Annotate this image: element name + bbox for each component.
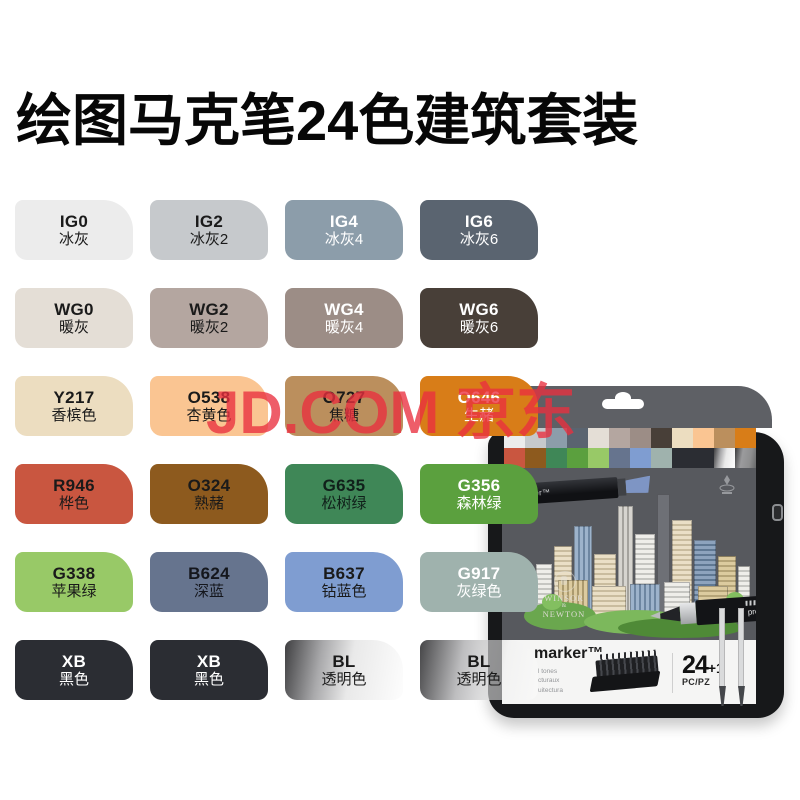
marker-ferrule — [617, 478, 626, 496]
color-chip — [609, 428, 630, 448]
color-chip — [651, 448, 672, 468]
color-swatch-wg6: WG6 暖灰6 — [420, 288, 538, 348]
color-swatch-ig4: IG4 冰灰4 — [285, 200, 403, 260]
swatch-code: G917 — [458, 564, 501, 583]
color-swatch-ig2: IG2 冰灰2 — [150, 200, 268, 260]
color-swatch-g356: G356 森林绿 — [420, 464, 538, 524]
winsor-emblem-icon — [554, 571, 576, 592]
color-swatch-o324: O324 熟赭 — [150, 464, 268, 524]
swatch-code: G338 — [53, 564, 96, 583]
multilanguage-description: l tones cturaux uitectura — [538, 667, 563, 695]
marker-ring — [679, 602, 696, 624]
swatch-name: 冰灰6 — [460, 232, 498, 249]
swatch-name: 深蓝 — [194, 584, 224, 601]
color-swatch-xb-1: XB 黑色 — [15, 640, 133, 700]
color-swatch-ig0: IG0 冰灰 — [15, 200, 133, 260]
marker-barrel: promark — [695, 594, 756, 625]
swatch-name: 暖灰4 — [325, 320, 363, 337]
color-swatch-g338: G338 苹果绿 — [15, 552, 133, 612]
color-chip-strip-row2 — [504, 448, 756, 468]
city-illustration: WINSOR & NEWTON ker™ promark — [502, 468, 756, 640]
swatch-code: IG0 — [60, 212, 88, 231]
pack-count: 24+1 PC/PZ — [682, 651, 724, 687]
color-swatch-g635: G635 松树绿 — [285, 464, 403, 524]
swatch-code: Y217 — [54, 388, 95, 407]
swatch-code: WG2 — [189, 300, 229, 319]
color-swatch-b637: B637 钴蓝色 — [285, 552, 403, 612]
swatch-code: WG4 — [324, 300, 364, 319]
swatch-name: 暖灰2 — [190, 320, 228, 337]
swatch-code: R946 — [53, 476, 95, 495]
swatch-code: XB — [62, 652, 86, 671]
brand-line: WINSOR — [538, 594, 590, 603]
swatch-code: IG2 — [195, 212, 223, 231]
swatch-name: 暖灰6 — [460, 320, 498, 337]
swatch-name: 暖灰 — [59, 320, 89, 337]
color-swatch-ig6: IG6 冰灰6 — [420, 200, 538, 260]
pack-count-number: 24 — [682, 651, 708, 679]
swatch-code: IG4 — [330, 212, 358, 231]
color-chip — [693, 428, 714, 448]
color-chip — [735, 448, 756, 468]
color-chip — [714, 448, 735, 468]
description-line: l tones — [538, 667, 563, 676]
marker-cone — [660, 606, 681, 622]
swatch-name: 灰绿色 — [456, 584, 501, 601]
swatch-name: 钴蓝色 — [321, 584, 366, 601]
product-banner: 绘图马克笔24色建筑套装 — [0, 0, 800, 800]
crest-icon — [718, 474, 736, 496]
color-chip — [588, 428, 609, 448]
swatch-name: 透明色 — [456, 672, 501, 689]
swatch-code: G356 — [458, 476, 501, 495]
swatch-name: 松树绿 — [321, 496, 366, 513]
swatch-name: 黑色 — [194, 672, 224, 689]
marker-barrel-label: promark — [748, 606, 756, 617]
color-chip — [567, 448, 588, 468]
color-swatch-g917: G917 灰绿色 — [420, 552, 538, 612]
swatch-code: BL — [332, 652, 355, 671]
swatch-code: G635 — [323, 476, 366, 495]
swatch-name: 黑色 — [59, 672, 89, 689]
marker-nib — [738, 608, 744, 688]
swatch-name: 透明色 — [321, 672, 366, 689]
swatch-name: 冰灰4 — [325, 232, 363, 249]
marker-fine-tip — [650, 612, 660, 620]
swatch-name: 桦色 — [59, 496, 89, 513]
color-chip — [609, 448, 630, 468]
swatch-code: IG6 — [465, 212, 493, 231]
zipper-pull-icon — [772, 504, 783, 521]
swatch-code: O324 — [188, 476, 231, 495]
swatch-name: 香槟色 — [51, 408, 96, 425]
color-chip — [546, 448, 567, 468]
swatch-name: 森林绿 — [456, 496, 501, 513]
box-bottom-strip: marker™ l tones cturaux uitectura 24+1 P… — [502, 640, 756, 704]
hang-hole-icon — [602, 399, 644, 409]
color-chip — [672, 428, 693, 448]
strip-divider — [672, 653, 673, 693]
description-line: cturaux — [538, 676, 563, 685]
color-chip — [672, 448, 693, 468]
marker-nib — [719, 608, 725, 688]
color-swatch-wg2: WG2 暖灰2 — [150, 288, 268, 348]
color-chip — [714, 428, 735, 448]
swatch-name: 苹果绿 — [51, 584, 96, 601]
swatch-name: 冰灰 — [59, 232, 89, 249]
swatch-name: 熟赭 — [194, 496, 224, 513]
barcode-graphic — [745, 599, 756, 606]
brand-line: NEWTON — [538, 610, 590, 619]
marker-tray-graphic — [588, 650, 666, 696]
color-chip — [693, 448, 714, 468]
page-title: 绘图马克笔24色建筑套装 — [16, 76, 638, 157]
swatch-code: BL — [467, 652, 490, 671]
color-swatch-r946: R946 桦色 — [15, 464, 133, 524]
color-swatch-y217: Y217 香槟色 — [15, 376, 133, 436]
winsor-newton-logo: WINSOR & NEWTON — [538, 594, 590, 619]
swatch-code: WG6 — [459, 300, 499, 319]
swatch-name: 冰灰2 — [190, 232, 228, 249]
color-chip — [735, 428, 756, 448]
description-line: uitectura — [538, 686, 563, 695]
color-chip — [630, 428, 651, 448]
marker-blue-nib — [625, 476, 651, 495]
swatch-code: XB — [197, 652, 221, 671]
swatch-code: B624 — [188, 564, 230, 583]
jd-watermark: JD.COM 京东 — [206, 364, 576, 451]
color-chip — [651, 428, 672, 448]
swatch-code: WG0 — [54, 300, 94, 319]
pack-count-unit: PC/PZ — [682, 677, 724, 687]
color-swatch-bl-1: BL 透明色 — [285, 640, 403, 700]
color-swatch-wg4: WG4 暖灰4 — [285, 288, 403, 348]
swatch-code: B637 — [323, 564, 365, 583]
color-chip — [630, 448, 651, 468]
color-chip — [588, 448, 609, 468]
color-swatch-bl-2: BL 透明色 — [420, 640, 538, 700]
color-swatch-xb-2: XB 黑色 — [150, 640, 268, 700]
color-swatch-wg0: WG0 暖灰 — [15, 288, 133, 348]
color-swatch-b624: B624 深蓝 — [150, 552, 268, 612]
